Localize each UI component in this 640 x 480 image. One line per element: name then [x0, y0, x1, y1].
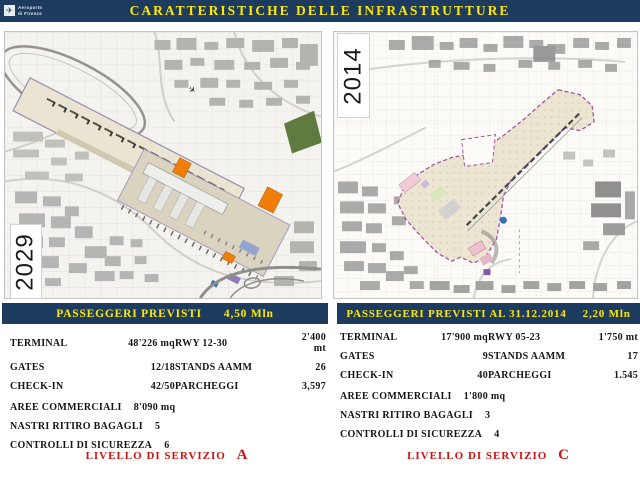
spec-value: 48'226 mq: [105, 338, 175, 349]
spec-row: NASTRI RITIRO BAGAGLI 5: [10, 421, 326, 432]
spec-value: 40: [428, 370, 488, 381]
spec-value: 17'900 mq: [428, 332, 488, 343]
spec-label: PARCHEGGI: [488, 370, 588, 381]
banner-value: 2,20 Mln: [583, 308, 631, 320]
spec-label: NASTRI RITIRO BAGAGLI: [340, 410, 473, 421]
slide-title: CARATTERISTICHE DELLE INFRASTRUTTURE: [0, 0, 640, 22]
spec-label: CHECK-IN: [340, 370, 428, 381]
spec-row: CONTROLLI DI SICUREZZA 4: [340, 429, 638, 440]
service-level-2029: LIVELLO DI SERVIZIO A: [8, 447, 326, 464]
logo-text: Aeroporto di Firenze: [18, 5, 42, 16]
airport-logo: ✈ Aeroporto di Firenze: [4, 3, 42, 18]
spec-value: 8'090 mq: [134, 402, 176, 413]
passengers-banner-2029: PASSEGGERI PREVISTI 4,50 Mln: [2, 303, 328, 324]
spec-value: 17: [588, 351, 638, 362]
header-bar: ✈ Aeroporto di Firenze CARATTERISTICHE D…: [0, 0, 640, 22]
spec-value: 4: [494, 429, 499, 440]
service-level-2014: LIVELLO DI SERVIZIO C: [337, 447, 640, 464]
service-label: LIVELLO DI SERVIZIO: [407, 450, 547, 462]
spec-label: TERMINAL: [10, 338, 105, 349]
year-label-2014: 2014: [337, 33, 370, 118]
spec-grid: TERMINAL 17'900 mq RWY 05-23 1'750 mt GA…: [340, 332, 638, 381]
spec-full-rows: AREE COMMERCIALI 1'800 mq NASTRI RITIRO …: [340, 391, 638, 440]
spec-label: PARCHEGGI: [175, 381, 290, 392]
spec-label: CHECK-IN: [10, 381, 105, 392]
spec-row: AREE COMMERCIALI 1'800 mq: [340, 391, 638, 402]
boundary-notch: [462, 135, 496, 167]
spec-value: 1'750 mt: [588, 332, 638, 343]
map-2014-svg: [334, 32, 637, 298]
spec-label: STANDS AAMM: [175, 362, 290, 373]
spec-value: 1.545: [588, 370, 638, 381]
spec-value: 2'400 mt: [290, 332, 326, 354]
spec-label: NASTRI RITIRO BAGAGLI: [10, 421, 143, 432]
spec-label: RWY 12-30: [175, 338, 290, 349]
logo-line1: Aeroporto: [18, 5, 42, 10]
spec-value: 1'800 mq: [464, 391, 506, 402]
water-feature: [500, 217, 507, 224]
spec-label: RWY 05-23: [488, 332, 588, 343]
spec-label: GATES: [340, 351, 428, 362]
year-label-2029: 2029: [10, 224, 42, 299]
spec-label: AREE COMMERCIALI: [10, 402, 122, 413]
spec-table-2014: TERMINAL 17'900 mq RWY 05-23 1'750 mt GA…: [340, 332, 638, 440]
spec-value: 26: [290, 362, 326, 373]
spec-value: 12/18: [105, 362, 175, 373]
passengers-banner-2014: PASSEGGERI PREVISTI AL 31.12.2014 2,20 M…: [337, 303, 640, 324]
banner-value: 4,50 Mln: [224, 308, 274, 320]
logo-line2: di Firenze: [18, 11, 42, 16]
spec-value: 3,597: [290, 381, 326, 392]
spec-label: GATES: [10, 362, 105, 373]
spec-value: 9: [428, 351, 488, 362]
spec-table-2029: TERMINAL 48'226 mq RWY 12-30 2'400 mt GA…: [10, 332, 326, 451]
map-2029-svg: ✈: [5, 32, 321, 298]
banner-label: PASSEGGERI PREVISTI: [56, 308, 202, 320]
map-2029-masterplan: ✈: [4, 31, 322, 299]
spec-label: STANDS AAMM: [488, 351, 588, 362]
service-label: LIVELLO DI SERVIZIO: [86, 450, 226, 462]
airplane-logo-icon: ✈: [4, 5, 15, 16]
spec-value: 42/50: [105, 381, 175, 392]
spec-label: CONTROLLI DI SICUREZZA: [340, 429, 482, 440]
spec-full-rows: AREE COMMERCIALI 8'090 mq NASTRI RITIRO …: [10, 402, 326, 451]
service-grade: C: [558, 447, 570, 463]
spec-value: 3: [485, 410, 490, 421]
spec-row: AREE COMMERCIALI 8'090 mq: [10, 402, 326, 413]
service-grade: A: [237, 447, 249, 463]
map-2014-state: [333, 31, 638, 299]
spec-label: TERMINAL: [340, 332, 428, 343]
spec-row: NASTRI RITIRO BAGAGLI 3: [340, 410, 638, 421]
spec-label: AREE COMMERCIALI: [340, 391, 452, 402]
banner-label: PASSEGGERI PREVISTI AL 31.12.2014: [346, 308, 566, 320]
spec-grid: TERMINAL 48'226 mq RWY 12-30 2'400 mt GA…: [10, 332, 326, 392]
spec-value: 5: [155, 421, 160, 432]
